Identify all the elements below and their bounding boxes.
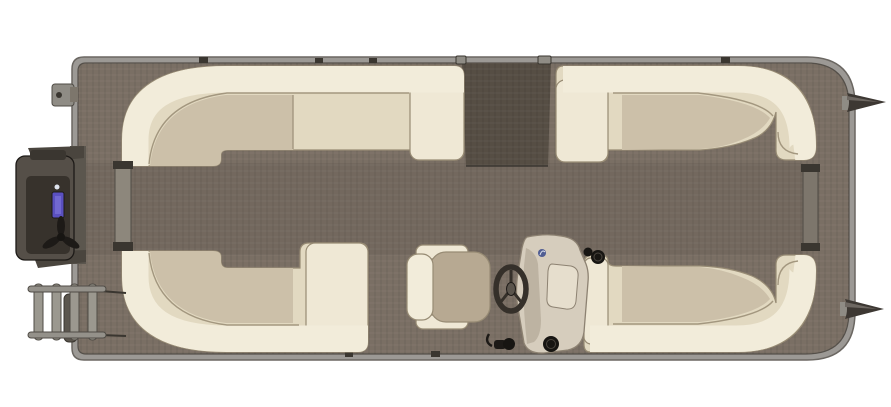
bow-gate <box>801 164 820 251</box>
motor-cap <box>30 150 66 160</box>
ladder-rail <box>28 286 106 292</box>
bracket-tab <box>70 87 78 102</box>
outboard-motor <box>16 146 86 268</box>
gate-post <box>803 168 818 250</box>
cupholder-icon <box>543 336 559 352</box>
boat-floorplan-image <box>0 0 891 407</box>
stern-hinge-bracket <box>52 84 78 106</box>
console-face-panel <box>547 264 578 309</box>
gate-cap <box>801 164 820 172</box>
helm-gauge-icon <box>591 250 605 264</box>
captains-chair <box>407 245 490 329</box>
motor-detail-dot <box>55 185 60 190</box>
rail-cleat <box>315 58 323 63</box>
gate-cap <box>801 243 820 251</box>
brand-logo-icon <box>538 249 546 257</box>
chair-seat <box>430 252 490 322</box>
throttle-knob <box>503 338 515 350</box>
lounge-armrest <box>306 243 368 340</box>
bottom-right-lounge <box>584 255 816 352</box>
chair-backrest <box>407 254 433 320</box>
rail-cleat <box>721 57 730 63</box>
gate-cap <box>113 161 133 169</box>
wheel-hub <box>507 283 516 296</box>
gate-hinge <box>456 56 466 64</box>
motor-sticker-inner <box>55 196 61 214</box>
pontoon-floorplan-svg <box>0 0 891 407</box>
gate-hinge <box>538 56 551 64</box>
stern-gate <box>113 161 133 251</box>
gate-post <box>115 165 131 249</box>
rail-cleat <box>431 351 440 357</box>
helm-speaker-icon <box>584 248 593 257</box>
bracket-bolt <box>56 92 62 98</box>
ladder-rail <box>28 332 106 338</box>
rail-cleat <box>369 58 377 63</box>
gate-cap <box>113 242 133 251</box>
top-right-lounge <box>556 66 816 162</box>
rail-cleat <box>199 57 208 63</box>
